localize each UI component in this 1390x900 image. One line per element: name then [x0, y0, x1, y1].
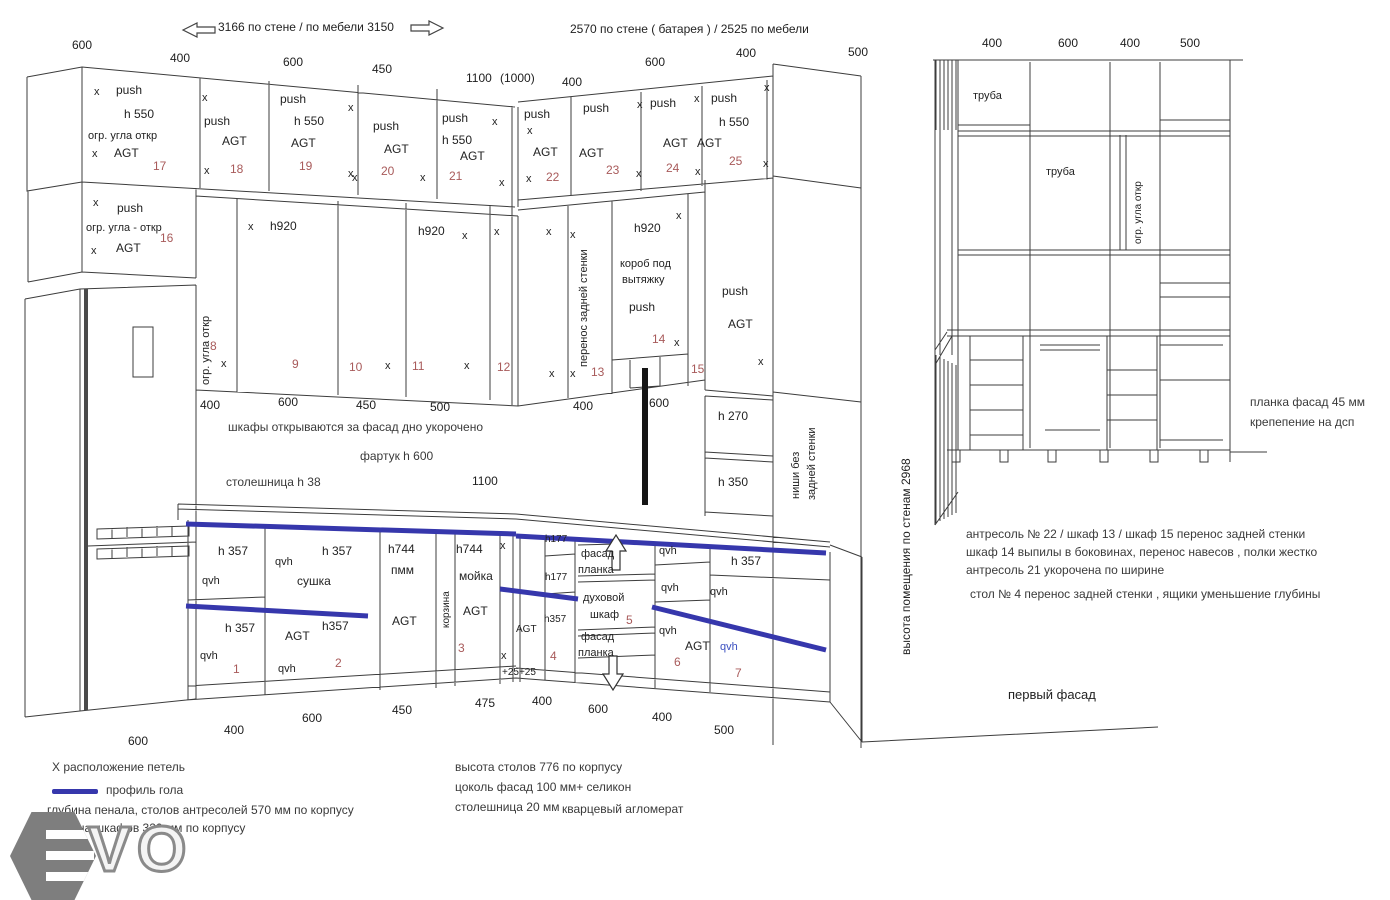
cabinet-number: 17 [153, 160, 166, 173]
table-height-note: высота столов 776 по корпусу [455, 761, 622, 774]
cabinet-opening-note: шкафы открываются за фасад дно укорочено [228, 421, 483, 434]
gola-profile-swatch [52, 789, 98, 794]
dim-label: 600 [645, 56, 665, 69]
hinge-x-mark: x [248, 221, 254, 233]
opening-limit-label-vertical: огр. угла откр [1133, 152, 1144, 244]
back-panel-note-vertical: перенос задней стенки [578, 222, 590, 367]
dim-label: 600 [302, 712, 322, 725]
quartz-note: кварцевый агломерат [562, 803, 683, 816]
hinge-x-mark: x [695, 166, 701, 178]
hinge-x-mark: x [764, 82, 770, 94]
countertop-thickness-note: столешница 20 мм [455, 801, 559, 814]
qvh-label: qvh [275, 556, 293, 568]
hinge-x-mark: x [501, 650, 507, 662]
hinge-x-mark: x [91, 245, 97, 257]
agt-label: AGT [685, 640, 710, 653]
opening-limit-label-vertical: огр. угла откр [200, 225, 212, 385]
cabinet-number: 10 [349, 361, 362, 374]
agt-label: AGT [291, 137, 316, 150]
dim-label: 475 [475, 697, 495, 710]
push-label: push [524, 108, 550, 121]
hinge-x-mark: x [570, 229, 576, 241]
dim-label: 400 [170, 52, 190, 65]
hinge-x-mark: x [348, 102, 354, 114]
hinge-x-mark: x [546, 226, 552, 238]
niche-height-label: h 270 [718, 410, 748, 423]
hinge-x-mark: x [763, 158, 769, 170]
qvh-label: qvh [710, 586, 728, 598]
hinge-x-mark: x [221, 358, 227, 370]
hinge-x-mark: x [420, 172, 426, 184]
cabinet-number: 20 [381, 165, 394, 178]
dim-label: 400 [532, 695, 552, 708]
facade-note: антресоль № 22 / шкаф 13 / шкаф 15 перен… [966, 528, 1305, 541]
gola-profile-lines [186, 524, 826, 650]
agt-label: AGT [222, 135, 247, 148]
hinge-x-mark: x [694, 93, 700, 105]
gola-profile-note: профиль гола [106, 784, 183, 797]
qvh-label: qvh [202, 575, 220, 587]
dim-label: 500 [430, 401, 450, 414]
qvh-label: qvh [200, 650, 218, 662]
hinge-x-mark: x [674, 337, 680, 349]
hinge-x-mark: x [94, 86, 100, 98]
height-label: h744 [456, 543, 483, 556]
height-label: h 550 [442, 134, 472, 147]
height-label: h 550 [294, 115, 324, 128]
qvh-label: qvh [659, 625, 677, 637]
height-label: h 357 [322, 545, 352, 558]
kitchen-drawing-sheet: 3166 по стене / по мебели 3150 2570 по с… [0, 0, 1390, 900]
opening-limit-label: огр. угла откр [88, 130, 157, 142]
agt-label: AGT [114, 147, 139, 160]
push-label: push [116, 84, 142, 97]
filler-note: +25+25 [502, 667, 536, 678]
basket-label-vertical: корзина [441, 570, 452, 628]
height-label: h 357 [225, 622, 255, 635]
dim-label: 400 [562, 76, 582, 89]
height-label: h920 [418, 225, 445, 238]
cabinet-number: 18 [230, 163, 243, 176]
cabinet-number: 13 [591, 366, 604, 379]
facade-strip-note: крепепение на дсп [1250, 416, 1354, 429]
hinge-x-mark: x [570, 368, 576, 380]
cabinet-number: 21 [449, 170, 462, 183]
watermark-text: VO [88, 812, 192, 886]
height-label: h357 [544, 614, 566, 625]
agt-label: AGT [663, 137, 688, 150]
push-label: push [204, 115, 230, 128]
facade-note: стол № 4 перенос задней стенки , ящики у… [970, 588, 1320, 601]
hinge-x-mark: x [637, 99, 643, 111]
hinge-x-mark: x [549, 368, 555, 380]
cabinet-number: 1 [233, 663, 240, 676]
drawing-linework [0, 0, 1390, 900]
wall-dimension-right: 2570 по стене ( батарея ) / 2525 по мебе… [570, 23, 809, 36]
dim-label: 400 [1120, 37, 1140, 50]
cabinet-number: 22 [546, 171, 559, 184]
hinge-x-mark: x [93, 197, 99, 209]
arrow-right-icon [411, 21, 443, 35]
agt-label: AGT [579, 147, 604, 160]
hinge-x-mark: x [526, 173, 532, 185]
dim-label: 600 [283, 56, 303, 69]
niche-height-label: h 350 [718, 476, 748, 489]
push-label: push [117, 202, 143, 215]
facade-title: первый фасад [1008, 688, 1096, 702]
hinge-x-mark: x [202, 92, 208, 104]
arrow-left-icon [183, 23, 215, 37]
qvh-label: qvh [659, 545, 677, 557]
height-label: h744 [388, 543, 415, 556]
cabinet-number: 16 [160, 232, 173, 245]
dim-label: 1100 [472, 475, 498, 488]
cabinet-number: 14 [652, 333, 665, 346]
hinge-x-mark: x [204, 165, 210, 177]
push-label: push [711, 92, 737, 105]
dim-label: 400 [200, 399, 220, 412]
push-label: push [280, 93, 306, 106]
qvh-label: qvh [720, 641, 738, 653]
hinge-x-mark: x [636, 168, 642, 180]
dim-label: 600 [128, 735, 148, 748]
cabinet-number: 23 [606, 164, 619, 177]
pipe-label: труба [1046, 166, 1075, 178]
facade-strip-label: планка [578, 564, 614, 576]
agt-label: AGT [460, 150, 485, 163]
hinge-x-mark: x [499, 177, 505, 189]
facade-strip-note: планка фасад 45 мм [1250, 396, 1365, 409]
height-label: h 357 [731, 555, 761, 568]
push-label: push [722, 285, 748, 298]
agt-label: AGT [392, 615, 417, 628]
room-height-label-vertical: высота помещения по стенам 2968 [900, 420, 913, 655]
pipe-label: труба [973, 90, 1002, 102]
dim-label: 450 [372, 63, 392, 76]
dryer-label: сушка [297, 575, 331, 588]
height-label: h177 [545, 534, 567, 545]
agt-label: AGT [697, 137, 722, 150]
height-label: h357 [322, 620, 349, 633]
agt-label: AGT [516, 624, 537, 635]
hinge-x-mark: x [352, 172, 358, 184]
cabinet-number: 7 [735, 667, 742, 680]
facade-strip-label: фасад [581, 548, 614, 560]
agt-label: AGT [463, 605, 488, 618]
dim-label: 600 [72, 39, 92, 52]
dim-label: 450 [356, 399, 376, 412]
height-label: h920 [270, 220, 297, 233]
agt-label: AGT [533, 146, 558, 159]
push-label: push [442, 112, 468, 125]
hinge-x-mark: x [385, 360, 391, 372]
cabinet-number: 15 [691, 363, 704, 376]
hood-box-label: короб под [620, 258, 671, 270]
dim-label: 400 [736, 47, 756, 60]
facade-strip-label: планка [578, 647, 614, 659]
push-label: push [583, 102, 609, 115]
push-label: push [629, 301, 655, 314]
hinge-x-mark: x [92, 148, 98, 160]
height-label: h 550 [124, 108, 154, 121]
hinge-x-mark: x [500, 540, 506, 552]
qvh-label: qvh [278, 663, 296, 675]
dim-label: 450 [392, 704, 412, 717]
cabinet-number: 5 [626, 614, 633, 627]
dim-label: 500 [1180, 37, 1200, 50]
dim-label: 400 [573, 400, 593, 413]
cabinet-number: 3 [458, 642, 465, 655]
hinge-x-mark: x [758, 356, 764, 368]
niche-note-vertical: ниши без [790, 437, 802, 499]
cabinet-number: 9 [292, 358, 299, 371]
hinge-x-mark: x [676, 210, 682, 222]
cabinet-number: 24 [666, 162, 679, 175]
facade-note: шкаф 14 выпилы в боковинах, перенос наве… [966, 546, 1317, 559]
qvh-label: qvh [661, 582, 679, 594]
agt-label: AGT [285, 630, 310, 643]
opening-limit-label: огр. угла - откр [86, 222, 162, 234]
agt-label: AGT [384, 143, 409, 156]
hinge-x-mark: x [494, 226, 500, 238]
agt-label: AGT [116, 242, 141, 255]
height-label: h 357 [218, 545, 248, 558]
cabinet-number: 2 [335, 657, 342, 670]
hinge-x-mark: x [462, 230, 468, 242]
height-label: h 550 [719, 116, 749, 129]
height-label: h920 [634, 222, 661, 235]
wall-dimension-left: 3166 по стене / по мебели 3150 [218, 21, 394, 34]
agt-label: AGT [728, 318, 753, 331]
plinth-note: цоколь фасад 100 мм+ селикон [455, 781, 631, 794]
dim-label: 600 [1058, 37, 1078, 50]
push-label: push [650, 97, 676, 110]
sink-label: мойка [459, 570, 493, 583]
facade-note: антресоль 21 укорочена по ширине [966, 564, 1164, 577]
cabinet-number: 19 [299, 160, 312, 173]
dim-label: 500 [714, 724, 734, 737]
countertop-note: столешница h 38 [226, 476, 321, 489]
oven-label: шкаф [590, 609, 619, 621]
push-label: push [373, 120, 399, 133]
hinge-x-mark: x [527, 125, 533, 137]
cabinet-number: 11 [412, 360, 424, 373]
dim-label-alt: (1000) [500, 72, 535, 85]
height-label: h177 [545, 572, 567, 583]
cabinet-number: 6 [674, 656, 681, 669]
cabinet-number: 25 [729, 155, 742, 168]
cabinet-number: 8 [210, 340, 217, 353]
apron-note: фартук h 600 [360, 450, 433, 463]
hood-box-label: вытяжку [622, 274, 665, 286]
hinge-x-mark: x [464, 360, 470, 372]
dim-label: 500 [848, 46, 868, 59]
dim-label: 400 [982, 37, 1002, 50]
facade-strip-label: фасад [581, 631, 614, 643]
dim-label: 600 [278, 396, 298, 409]
cabinet-number: 12 [497, 361, 510, 374]
cabinet-number: 4 [550, 650, 557, 663]
hinge-legend-note: X расположение петель [52, 761, 185, 774]
dim-label: 400 [224, 724, 244, 737]
dim-label: 600 [588, 703, 608, 716]
niche-note-vertical: задней стенки [806, 404, 818, 500]
dim-label: 1100 [466, 72, 492, 85]
dishwasher-label: пмм [391, 564, 414, 577]
oven-label: духовой [583, 592, 624, 604]
hinge-x-mark: x [492, 116, 498, 128]
dim-label: 600 [649, 397, 669, 410]
dim-label: 400 [652, 711, 672, 724]
